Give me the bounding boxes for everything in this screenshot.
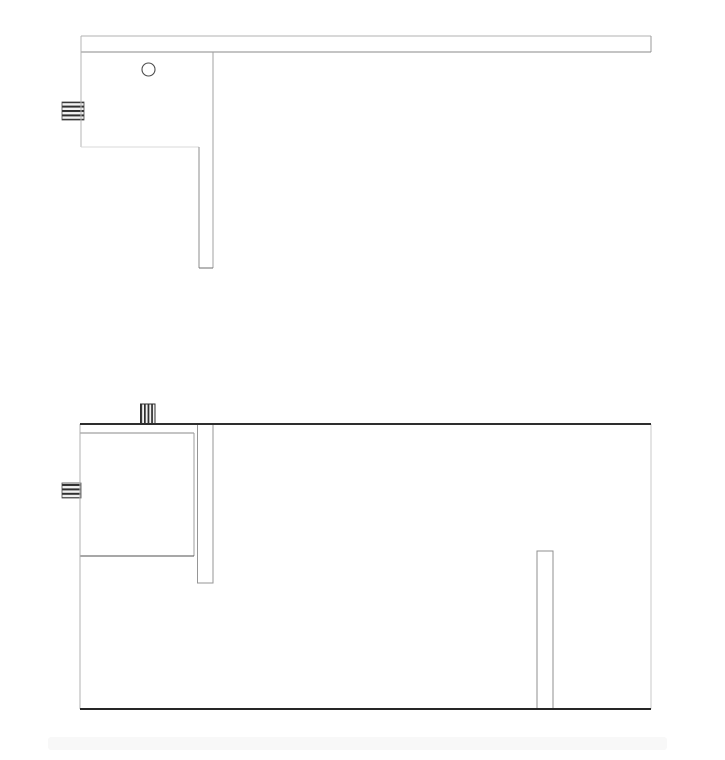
top-view xyxy=(62,36,651,268)
front-view xyxy=(62,404,651,709)
right-stem xyxy=(537,551,553,709)
hole xyxy=(142,63,155,76)
footer-shadow-band xyxy=(48,737,667,750)
inner-stem xyxy=(198,424,214,583)
top-port-plug xyxy=(141,404,156,424)
left-port-plug xyxy=(62,483,81,498)
footer xyxy=(48,737,667,750)
drawing-canvas xyxy=(0,0,725,760)
drawing-page xyxy=(0,0,725,760)
